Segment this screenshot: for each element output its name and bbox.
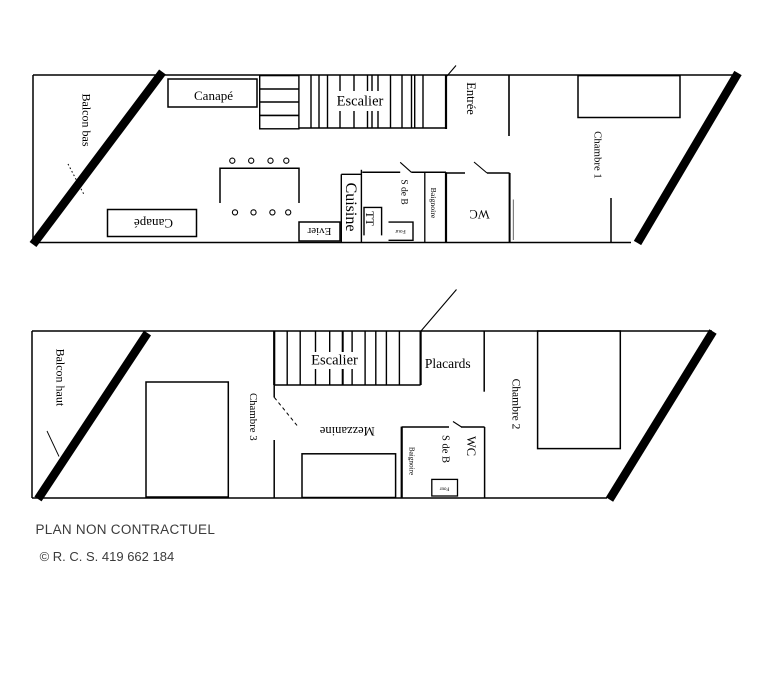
svg-text:Balcon haut: Balcon haut (53, 349, 67, 407)
svg-text:PLAN NON CONTRACTUEL: PLAN NON CONTRACTUEL (36, 522, 216, 537)
svg-text:© R. C. S. 419 662 184: © R. C. S. 419 662 184 (40, 549, 175, 564)
svg-text:Chambre 3: Chambre 3 (247, 393, 259, 441)
svg-text:Baignoire: Baignoire (429, 188, 438, 219)
svg-text:Four: Four (395, 228, 406, 234)
svg-text:Cuisine: Cuisine (342, 183, 359, 232)
svg-text:Placards: Placards (425, 356, 471, 371)
svg-text:Escalier: Escalier (337, 94, 384, 110)
svg-text:S de B: S de B (439, 435, 450, 463)
svg-text:Escalier: Escalier (311, 353, 358, 369)
svg-text:TT: TT (363, 211, 377, 226)
svg-text:S de B: S de B (398, 179, 408, 204)
svg-text:Canapé: Canapé (194, 88, 233, 103)
svg-text:Canapé: Canapé (134, 216, 173, 231)
svg-text:Mezzanine: Mezzanine (319, 424, 374, 438)
svg-text:Four: Four (440, 486, 450, 491)
svg-text:WC: WC (469, 207, 489, 221)
svg-text:Chambre 1: Chambre 1 (592, 131, 604, 179)
svg-text:WC: WC (464, 436, 478, 456)
svg-text:Balcon bas: Balcon bas (80, 94, 94, 147)
svg-text:Entrée: Entrée (464, 82, 478, 115)
svg-text:Evier: Evier (307, 225, 331, 237)
svg-text:Chambre 2: Chambre 2 (510, 379, 522, 430)
svg-text:Baignoire: Baignoire (408, 447, 416, 475)
